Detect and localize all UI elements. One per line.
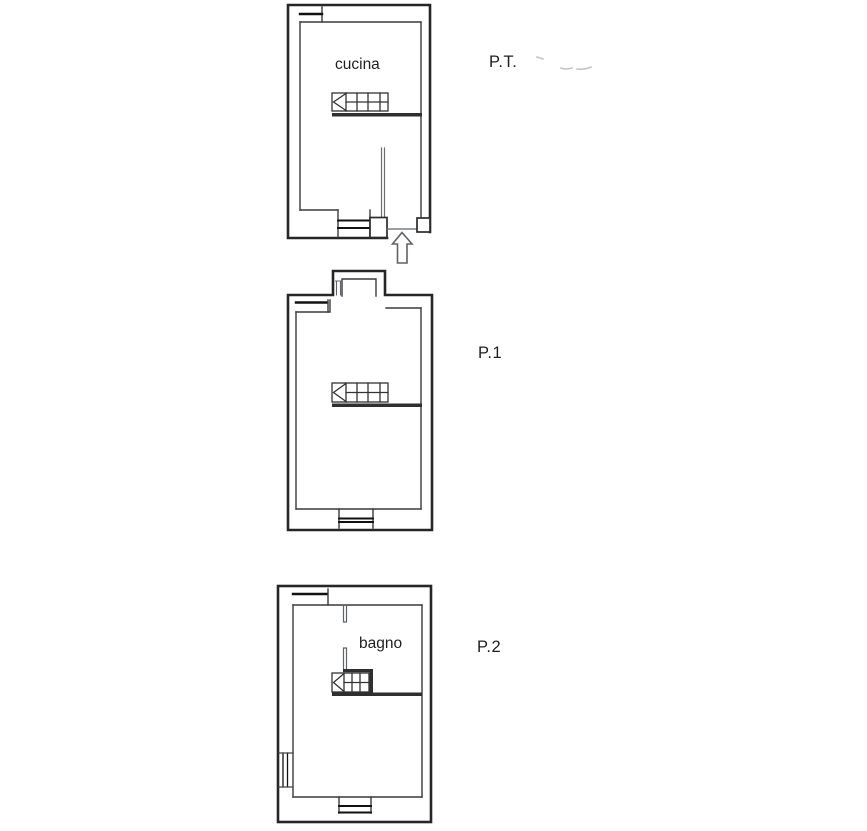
floor-plan-first-floor: P.1	[288, 271, 502, 530]
partition-wall	[382, 148, 385, 217]
faded-mark	[577, 67, 591, 69]
stairs-landing-wall	[332, 113, 422, 117]
left-window-frame	[279, 753, 293, 787]
stair-enclosure-wall	[344, 648, 347, 669]
floor-label-p1: P.1	[478, 344, 502, 362]
stair-enclosure-wall-top	[343, 669, 373, 672]
faded-text-marks	[537, 57, 591, 69]
floor-plan-document: cucina P.T.	[0, 0, 867, 831]
door-pier	[370, 218, 387, 238]
faded-mark	[537, 57, 543, 59]
floor-label-pt: P.T.	[489, 53, 517, 71]
protrusion-window	[336, 281, 342, 295]
stair-enclosure-wall-right	[370, 669, 374, 693]
stairs-landing-wall	[332, 404, 422, 408]
floor-plan-ground-floor: cucina P.T.	[288, 5, 591, 263]
room-label-bagno: bagno	[359, 635, 402, 652]
floor-plan-second-floor: bagno P.2	[278, 586, 501, 822]
floor-plan-canvas: cucina P.T.	[0, 0, 867, 831]
faded-mark	[561, 68, 572, 69]
outer-wall	[278, 586, 431, 822]
room-label-cucina: cucina	[335, 56, 380, 73]
entrance-arrow	[393, 233, 413, 264]
stairs-symbol	[332, 673, 369, 692]
bottom-window	[339, 519, 373, 523]
stairs-symbol	[332, 93, 388, 111]
stairs-landing-wall	[332, 693, 422, 697]
outer-wall	[288, 5, 430, 238]
bottom-window	[339, 806, 371, 813]
partition-stub	[344, 605, 347, 622]
left-window	[283, 753, 288, 787]
stairs-symbol	[332, 383, 388, 402]
wall-corner-block	[417, 218, 430, 232]
window-jamb	[339, 797, 371, 813]
protrusion-inner-wall	[342, 279, 376, 296]
floor-label-p2: P.2	[477, 638, 501, 656]
